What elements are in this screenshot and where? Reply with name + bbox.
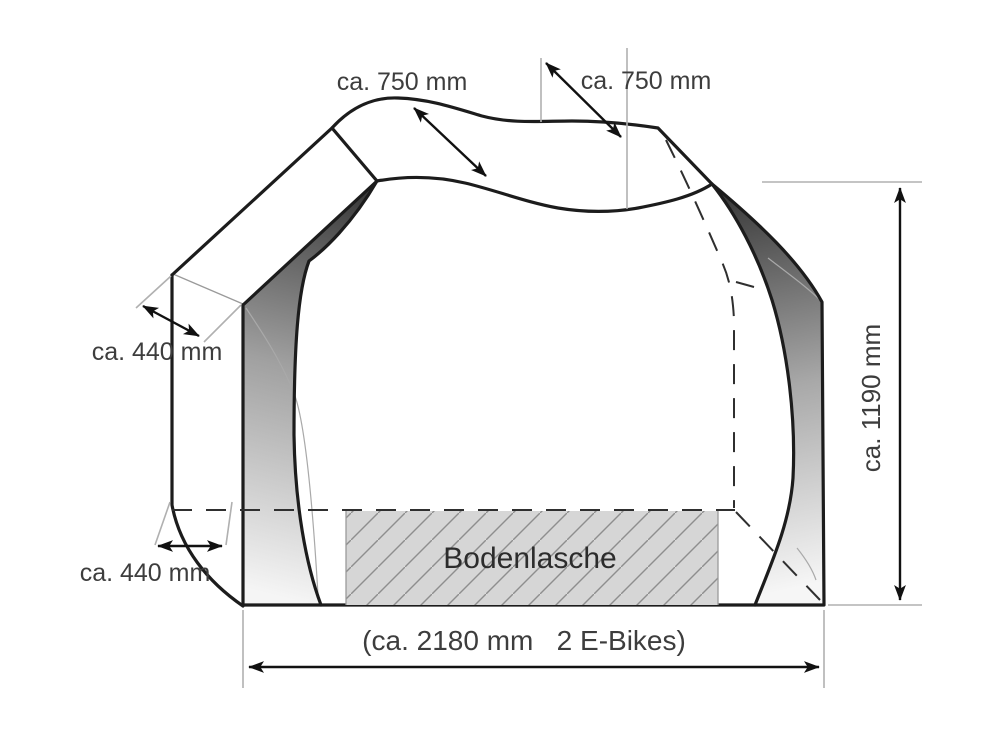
side-depth-lower-ext-2 — [226, 502, 232, 545]
dimension-side-depth-upper: ca. 440 mm — [92, 276, 241, 366]
side-depth-lower-label: ca. 440 mm — [80, 559, 211, 587]
height-label: ca. 1190 mm — [856, 324, 886, 472]
right-side-shading — [712, 184, 824, 605]
diagram-canvas: Bodenlasche ca. 750 mm ca. 750 mm ca. 44… — [0, 0, 999, 749]
roof-front-curve — [377, 177, 712, 211]
roof-band-left-edge — [332, 128, 377, 181]
ground-flap: Bodenlasche — [346, 511, 718, 605]
total-width-label: (ca. 2180 mm 2 E-Bikes) — [362, 625, 686, 656]
roof-width-left-arrow — [414, 108, 486, 176]
side-depth-lower-ext-1 — [155, 502, 170, 545]
side-depth-upper-ext-2 — [204, 305, 241, 342]
left-back-edge — [172, 275, 243, 606]
roof-width-right-label: ca. 750 mm — [581, 67, 712, 95]
ground-flap-label: Bodenlasche — [443, 542, 616, 575]
hidden-corner-dash — [736, 282, 754, 287]
left-band-soft-edge — [173, 274, 243, 304]
bike-cover-dimension-diagram: Bodenlasche ca. 750 mm ca. 750 mm ca. 44… — [0, 0, 999, 749]
dimension-side-depth-lower: ca. 440 mm — [80, 502, 232, 587]
side-depth-upper-label: ca. 440 mm — [92, 338, 223, 366]
dimension-roof-width-right: ca. 750 mm — [541, 48, 711, 209]
dimension-total-width: (ca. 2180 mm 2 E-Bikes) — [243, 610, 824, 688]
roof-width-left-label: ca. 750 mm — [337, 68, 468, 96]
side-depth-upper-ext-1 — [136, 276, 171, 308]
